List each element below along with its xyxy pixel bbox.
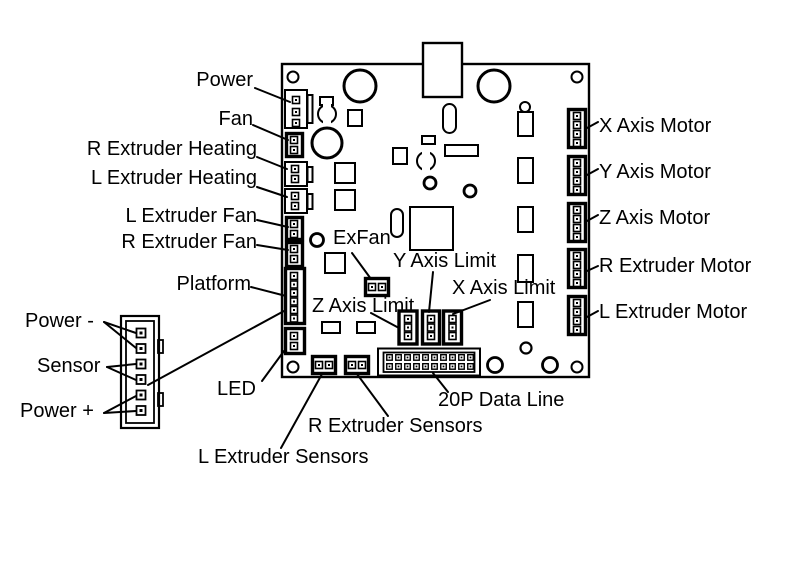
label-z-axis-motor: Z Axis Motor	[599, 208, 710, 229]
label-y-axis-limit: Y Axis Limit	[393, 251, 496, 272]
usb-connector	[423, 43, 462, 97]
label-y-axis-motor: Y Axis Motor	[599, 162, 711, 183]
label-l-extruder-sensors: L Extruder Sensors	[198, 447, 368, 468]
label-fan: Fan	[219, 109, 253, 130]
label-power-plus: Power +	[20, 401, 94, 422]
board-outline	[282, 64, 589, 377]
label-r-extruder-fan: R Extruder Fan	[121, 232, 257, 253]
label-platform: Platform	[177, 274, 251, 295]
label-r-extruder-sensors: R Extruder Sensors	[308, 416, 483, 437]
label-20p-data-line: 20P Data Line	[438, 390, 564, 411]
label-led: LED	[217, 379, 256, 400]
label-power-minus: Power -	[25, 311, 94, 332]
label-r-extruder-heating: R Extruder Heating	[87, 139, 257, 160]
label-r-extruder-motor: R Extruder Motor	[599, 256, 751, 277]
label-l-extruder-heating: L Extruder Heating	[91, 168, 257, 189]
board-diagram-art	[0, 0, 800, 585]
label-power: Power	[196, 70, 253, 91]
label-l-extruder-fan: L Extruder Fan	[125, 206, 257, 227]
label-sensor: Sensor	[37, 356, 100, 377]
label-l-extruder-motor: L Extruder Motor	[599, 302, 747, 323]
label-z-axis-limit: Z Axis Limit	[312, 296, 414, 317]
mainboard-wiring-diagram: Power Fan R Extruder Heating L Extruder …	[0, 0, 800, 585]
label-x-axis-motor: X Axis Motor	[599, 116, 711, 137]
label-x-axis-limit: X Axis Limit	[452, 278, 555, 299]
label-exfan: ExFan	[333, 228, 391, 249]
